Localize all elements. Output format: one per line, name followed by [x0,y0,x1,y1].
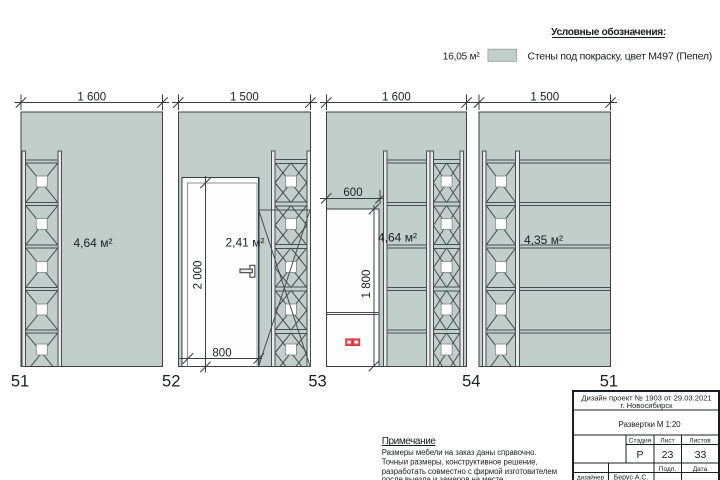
svg-text:Точныи размеры, конструктивное: Точныи размеры, конструктивное решение, [382,458,538,467]
svg-text:Размеры мебели на заказ даны с: Размеры мебели на заказ даны справочно. [382,448,537,457]
svg-text:после выезда и замеров на мест: после выезда и замеров на месте. [382,475,506,480]
svg-text:Лист: Лист [660,437,674,444]
svg-text:Условные обозначения:: Условные обозначения: [551,26,666,38]
svg-text:54: 54 [462,372,480,390]
svg-text:51: 51 [600,372,618,390]
svg-text:52: 52 [162,372,180,390]
svg-text:Листов: Листов [689,437,711,444]
svg-text:дизайнер: дизайнер [577,474,605,480]
svg-text:600: 600 [343,187,362,199]
svg-text:Стены под покраску, цвет М497: Стены под покраску, цвет М497 (Пепел) [528,50,712,62]
svg-text:Дата: Дата [693,466,708,473]
svg-text:1 600: 1 600 [77,91,106,103]
svg-text:Р: Р [636,449,643,461]
svg-text:33: 33 [695,449,707,461]
svg-text:2 000: 2 000 [193,261,205,290]
svg-text:51: 51 [11,372,29,390]
svg-text:Подп.: Подп. [659,466,677,473]
svg-text:1 800: 1 800 [361,270,373,299]
svg-text:г. Новосибирск: г. Новосибирск [621,401,674,410]
svg-text:800: 800 [212,348,231,360]
svg-text:4,64 м²: 4,64 м² [74,236,113,250]
svg-text:53: 53 [308,372,326,390]
svg-text:Развертки М 1:20: Развертки М 1:20 [619,420,682,429]
svg-text:23: 23 [662,449,674,461]
svg-text:1 500: 1 500 [230,91,259,103]
svg-text:1 600: 1 600 [382,91,411,103]
svg-text:4,35 м²: 4,35 м² [524,233,563,247]
svg-text:Берус А.С.: Берус А.С. [614,474,649,480]
svg-text:16,05 м²: 16,05 м² [443,51,481,62]
svg-text:Стадия: Стадия [629,437,652,444]
svg-text:2,41 м²: 2,41 м² [226,236,265,250]
svg-text:1 500: 1 500 [530,91,559,103]
svg-text:4,64 м²: 4,64 м² [378,231,417,245]
